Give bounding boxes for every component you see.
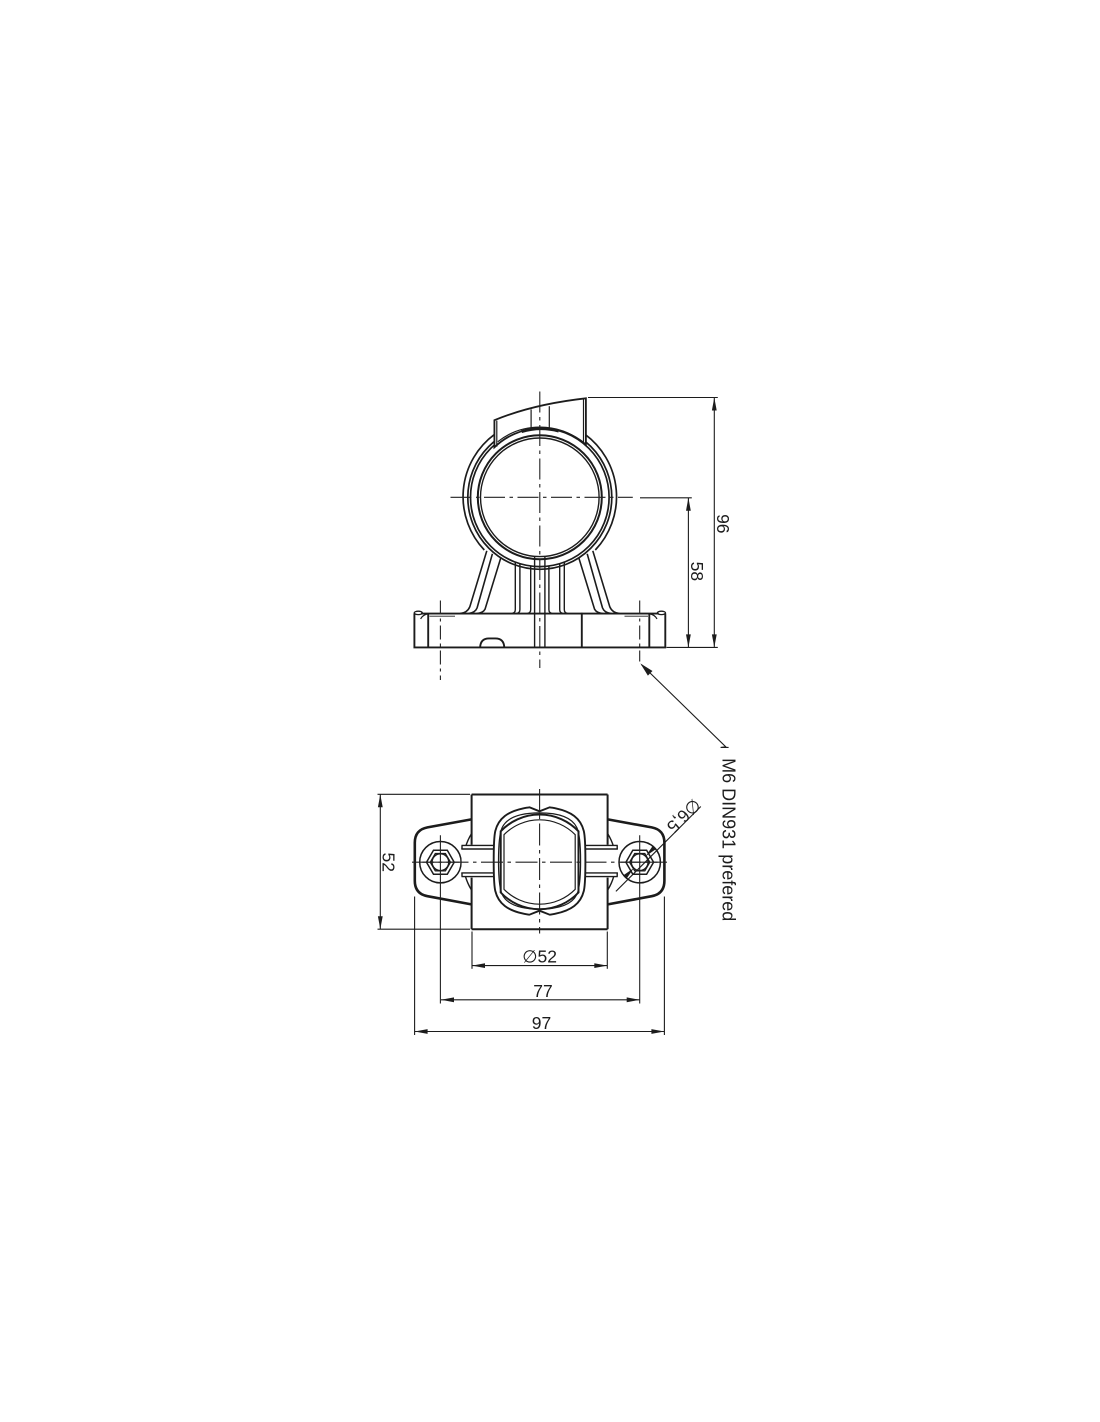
svg-text:77: 77 <box>533 981 552 1001</box>
svg-text:96: 96 <box>713 514 733 533</box>
svg-text:97: 97 <box>532 1013 551 1033</box>
svg-text:∅52: ∅52 <box>522 946 557 966</box>
svg-text:∅6,5: ∅6,5 <box>663 795 705 837</box>
svg-text:58: 58 <box>687 562 707 581</box>
svg-text:52: 52 <box>379 852 399 871</box>
svg-text:M6 DIN931 prefered: M6 DIN931 prefered <box>718 758 738 921</box>
